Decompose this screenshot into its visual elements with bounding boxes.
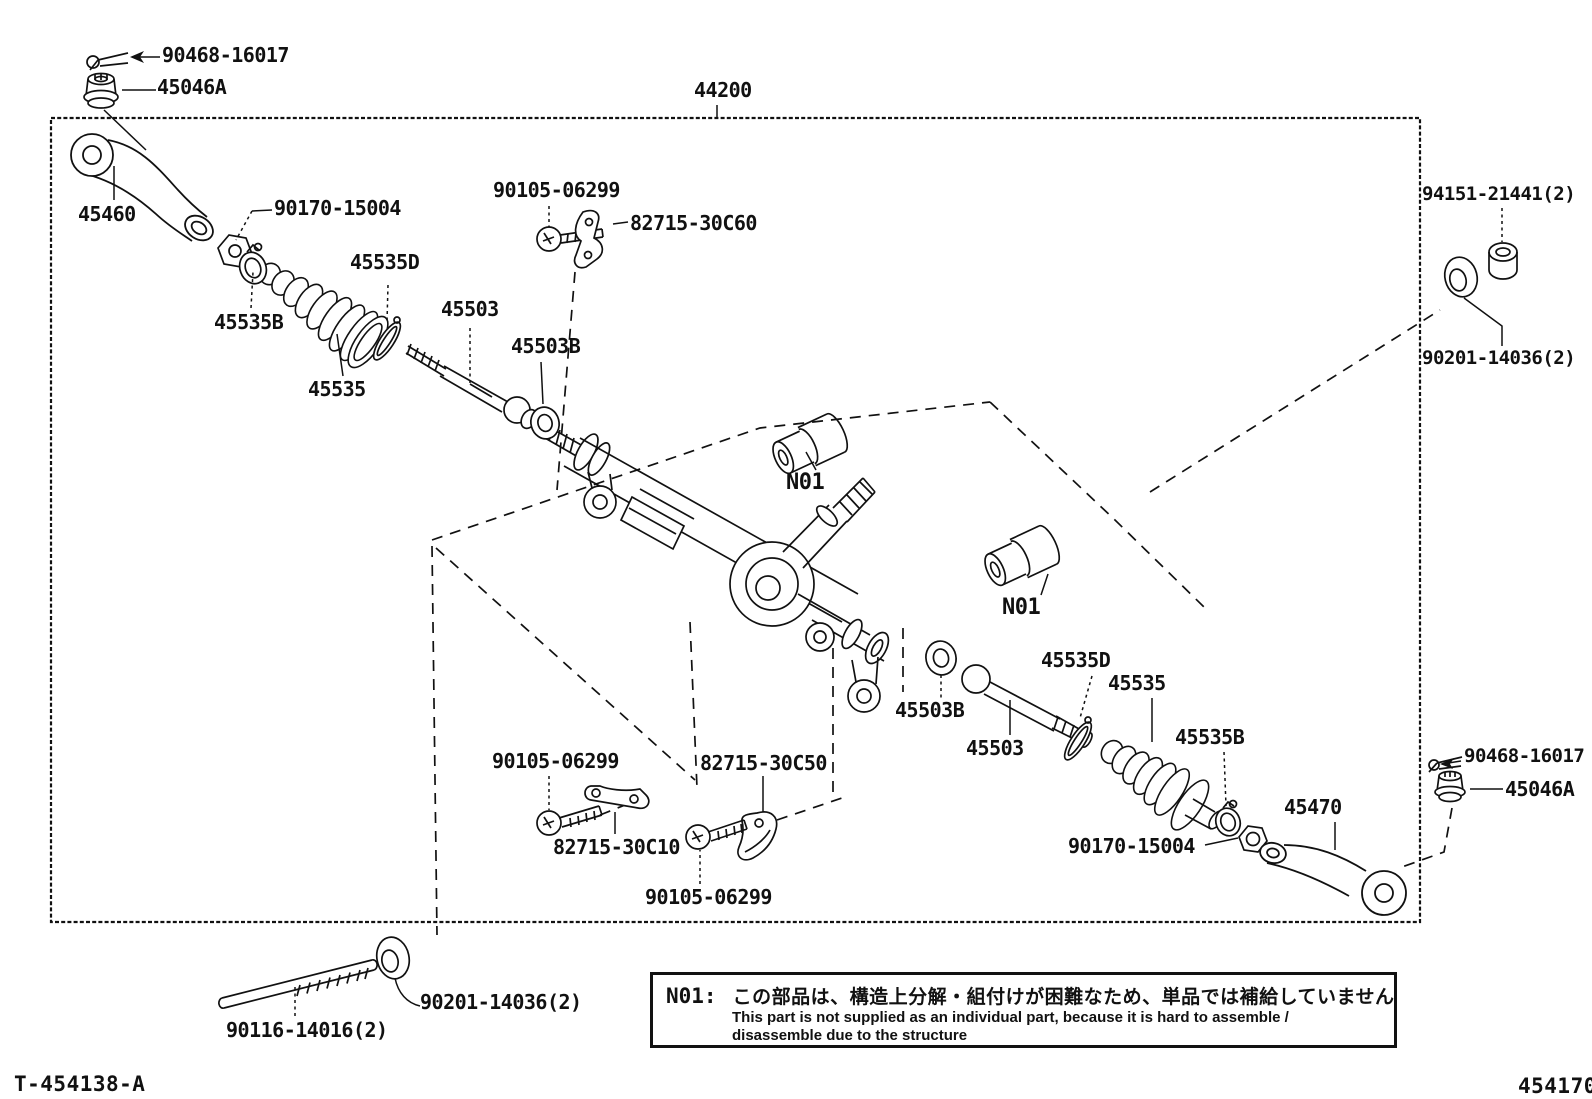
drawing-code: T-454138-A [14,1072,145,1096]
part-label-n01-a: N01 [786,471,824,494]
part-label-bracket-30c60: 82715-30C60 [630,213,757,234]
mount-washer-icon [373,934,413,982]
part-label-washer-45503b-right: 45503B [895,700,964,721]
part-label-bolt-90105-bm: 90105-06299 [645,887,772,908]
part-label-grommet-right: 45046A [1505,779,1574,800]
main-boundary-box [51,118,1420,922]
note-box: N01:この部品は、構造上分解・組付けが困難なため、単品では補給していません T… [650,972,1397,1048]
note-english-line1: This part is not supplied as an individu… [732,1009,1394,1027]
dotted-leader-lines [236,206,1502,1016]
part-label-nut-90170-left: 90170-15004 [274,198,401,219]
part-label-assembly-44200: 44200 [694,80,752,101]
bracket-shape [585,786,649,808]
flange-bolt-icon [537,806,602,835]
part-label-washer-90201-bottom: 90201-14036(2) [420,992,582,1013]
part-label-clamp-45535b-left: 45535B [214,312,283,333]
leader-arrowheads [130,51,1454,769]
mount-bushing-shape [979,523,1064,592]
part-label-washer-90201-right: 90201-14036(2) [1422,349,1575,369]
castle-nut-icon [1435,772,1465,802]
part-label-bracket-30c10: 82715-30C10 [553,837,680,858]
part-label-bolt-90105-top: 90105-06299 [493,180,620,201]
steering-boot-shape [1097,736,1226,835]
part-label-nut-90170-bottom: 90170-15004 [1068,836,1195,857]
lock-washer-icon [923,638,959,677]
note-english-line2: disassemble due to the structure [732,1027,1394,1045]
part-label-tierod-45503-right: 45503 [966,738,1024,759]
flange-bolt-icon [686,820,747,849]
part-label-nut-94151: 94151-21441(2) [1422,185,1575,205]
bracket-shape [738,812,777,860]
bracket-shape [575,211,603,268]
part-label-n01-b: N01 [1002,596,1040,619]
diagram-artwork [0,0,1592,1099]
part-label-arm-45460: 45460 [78,204,136,225]
part-label-cotter-pin-top: 90468-16017 [162,45,289,66]
part-label-bracket-30c50: 82715-30C50 [700,753,827,774]
part-label-oring-45535d-left: 45535D [350,252,419,273]
boot-clamp-icon [1212,801,1244,840]
part-label-arm-45470: 45470 [1284,797,1342,818]
part-label-boot-45535-right: 45535 [1108,673,1166,694]
part-label-tierod-45503-left: 45503 [441,299,499,320]
cotter-pin-icon [87,53,128,70]
figure-code: 454170 [1518,1074,1592,1098]
parts-catalog-page: 90468-1601745046A442004546090170-1500445… [0,0,1592,1099]
pitman-arm-shape [1258,841,1406,915]
mount-nut-icon [1489,243,1517,279]
mount-stud-shape [219,960,377,1008]
note-code: N01: [666,984,717,1008]
part-label-stud-90116: 90116-14016(2) [226,1020,388,1041]
part-label-oring-45535d-right: 45535D [1041,650,1110,671]
steering-gear-assembly-shape [545,426,893,712]
part-label-clamp-45535b-right: 45535B [1175,727,1244,748]
pitman-arm-shape [71,134,218,245]
part-label-grommet-top: 45046A [157,77,226,98]
part-label-bolt-90105-bl: 90105-06299 [492,751,619,772]
part-label-boot-45535-left: 45535 [308,379,366,400]
note-japanese-text: この部品は、構造上分解・組付けが困難なため、単品では補給していません [733,986,1395,1008]
mount-washer-icon [1441,254,1482,301]
part-label-cotter-pin-right: 90468-16017 [1464,747,1584,767]
castle-nut-icon [84,74,118,109]
part-label-washer-45503b-left: 45503B [511,336,580,357]
